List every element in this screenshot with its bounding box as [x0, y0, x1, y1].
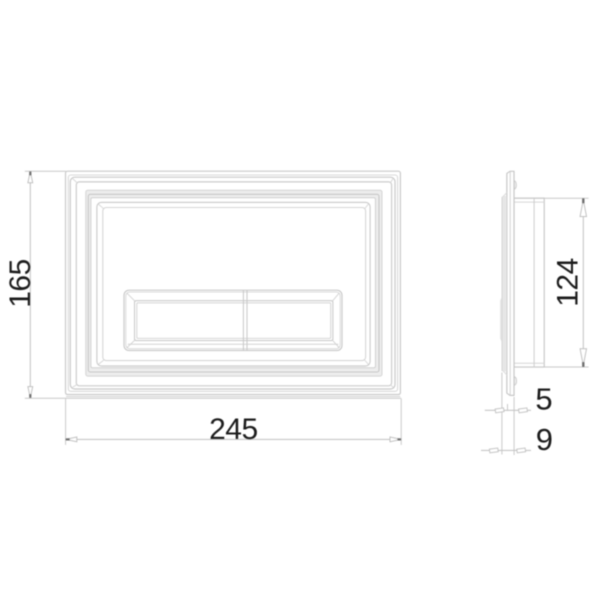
svg-text:9: 9	[536, 422, 553, 457]
svg-text:5: 5	[535, 382, 552, 417]
svg-text:124: 124	[551, 258, 584, 307]
svg-text:245: 245	[209, 413, 258, 446]
svg-text:165: 165	[4, 259, 37, 308]
